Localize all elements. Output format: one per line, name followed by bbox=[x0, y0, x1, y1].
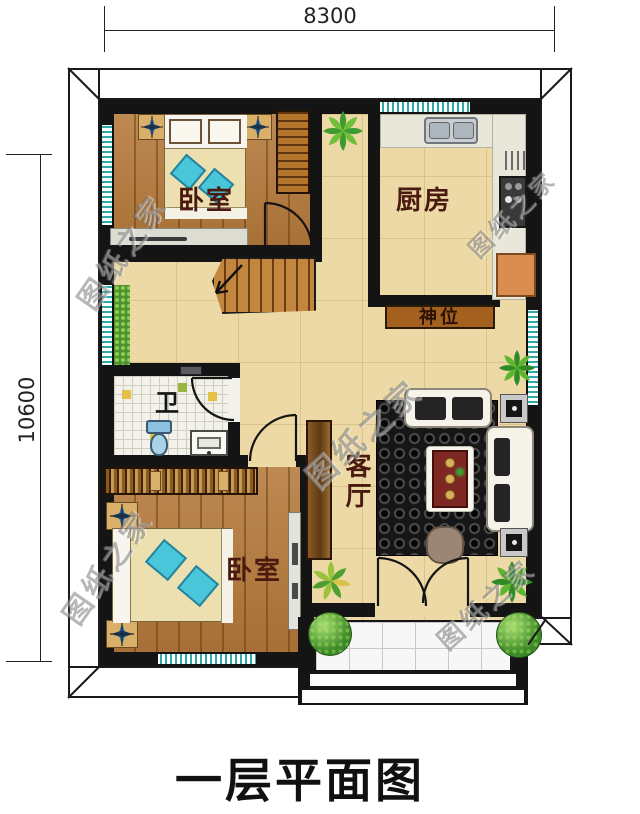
sofa-cushion bbox=[494, 484, 510, 522]
floor-plan-page: 8300 10600 bbox=[0, 0, 640, 814]
toilet-tank bbox=[146, 420, 172, 434]
room-label-bathroom: 卫 bbox=[155, 383, 181, 418]
side-table-dot bbox=[512, 540, 517, 545]
side-table-dot bbox=[512, 406, 517, 411]
toilet-bowl bbox=[150, 433, 168, 456]
dresser-items bbox=[292, 583, 298, 599]
bed-cushion bbox=[145, 539, 187, 581]
table-decor bbox=[445, 490, 455, 500]
window-kitchen-top bbox=[380, 100, 470, 114]
porch-step bbox=[308, 672, 518, 688]
sink-basin bbox=[429, 122, 450, 139]
bath-vanity bbox=[190, 430, 228, 456]
dim-label-width: 8300 bbox=[290, 4, 370, 28]
vanity-basin bbox=[197, 437, 221, 449]
window-bedroom-bottom bbox=[158, 652, 256, 666]
wall-bedroom-bottom-top bbox=[100, 455, 248, 467]
window-bedroom-top-left bbox=[100, 125, 114, 225]
dim-extension-line bbox=[6, 661, 52, 662]
pinwheel-decor-icon bbox=[140, 116, 164, 138]
ottoman bbox=[426, 526, 464, 564]
dresser-items bbox=[292, 543, 298, 565]
porch-step bbox=[300, 688, 526, 705]
dim-extension-line bbox=[104, 6, 105, 52]
nightstand bbox=[138, 114, 166, 140]
vent-lines bbox=[505, 151, 525, 170]
wall-bedroom-top-right bbox=[310, 100, 322, 262]
room-label-bedroom-bottom: 卧室 bbox=[226, 550, 282, 587]
bed-pillow bbox=[169, 119, 202, 144]
eave-right bbox=[540, 68, 572, 645]
dresser bbox=[288, 512, 301, 630]
stairs bbox=[212, 257, 316, 314]
door-opening-bathroom bbox=[228, 378, 240, 422]
bath-shelf bbox=[180, 366, 202, 375]
door-opening-bedroom-bottom bbox=[248, 455, 296, 467]
accent-tile bbox=[208, 392, 217, 401]
sofa bbox=[486, 426, 534, 532]
window-planter-hedge bbox=[114, 285, 130, 365]
accent-tile bbox=[122, 390, 131, 399]
shrine: 神位 bbox=[385, 305, 495, 329]
wardrobe-divider bbox=[150, 471, 161, 491]
dim-extension-line bbox=[554, 6, 555, 52]
room-label-bedroom-top: 卧室 bbox=[178, 180, 234, 217]
kitchen-sink bbox=[424, 117, 478, 144]
wardrobe bbox=[276, 110, 310, 194]
vanity-drain bbox=[207, 451, 211, 455]
wardrobe bbox=[104, 467, 258, 495]
pinwheel-decor-icon bbox=[110, 622, 134, 646]
dim-line-left bbox=[40, 154, 41, 662]
pinwheel-decor-icon bbox=[246, 116, 270, 138]
room-label-kitchen: 厨房 bbox=[396, 180, 452, 217]
bush-icon bbox=[308, 612, 352, 656]
sofa-cushion bbox=[452, 397, 483, 420]
coffee-table bbox=[432, 450, 468, 508]
eave-top bbox=[68, 68, 572, 100]
eave-bottom-left bbox=[68, 666, 312, 698]
side-table bbox=[500, 394, 528, 423]
bush-icon bbox=[496, 612, 542, 658]
wardrobe-divider bbox=[218, 471, 229, 491]
dim-extension-line bbox=[6, 154, 52, 155]
dim-line-top bbox=[104, 30, 555, 31]
room-label-shrine: 神位 bbox=[419, 307, 461, 328]
drawing-title: 一层平面图 bbox=[60, 742, 540, 811]
wall-kitchen-left bbox=[368, 100, 380, 307]
fridge bbox=[496, 253, 536, 297]
bed-cushion bbox=[177, 565, 219, 607]
table-plant-icon bbox=[454, 466, 466, 478]
sofa-cushion bbox=[494, 438, 510, 476]
nightstand bbox=[244, 114, 272, 140]
dim-label-height: 10600 bbox=[15, 365, 39, 455]
bed-pillow bbox=[208, 119, 241, 144]
nightstand bbox=[106, 620, 138, 648]
window-living-right bbox=[526, 310, 540, 405]
wall-bath-right-upper bbox=[228, 363, 240, 378]
sink-basin bbox=[453, 122, 474, 139]
